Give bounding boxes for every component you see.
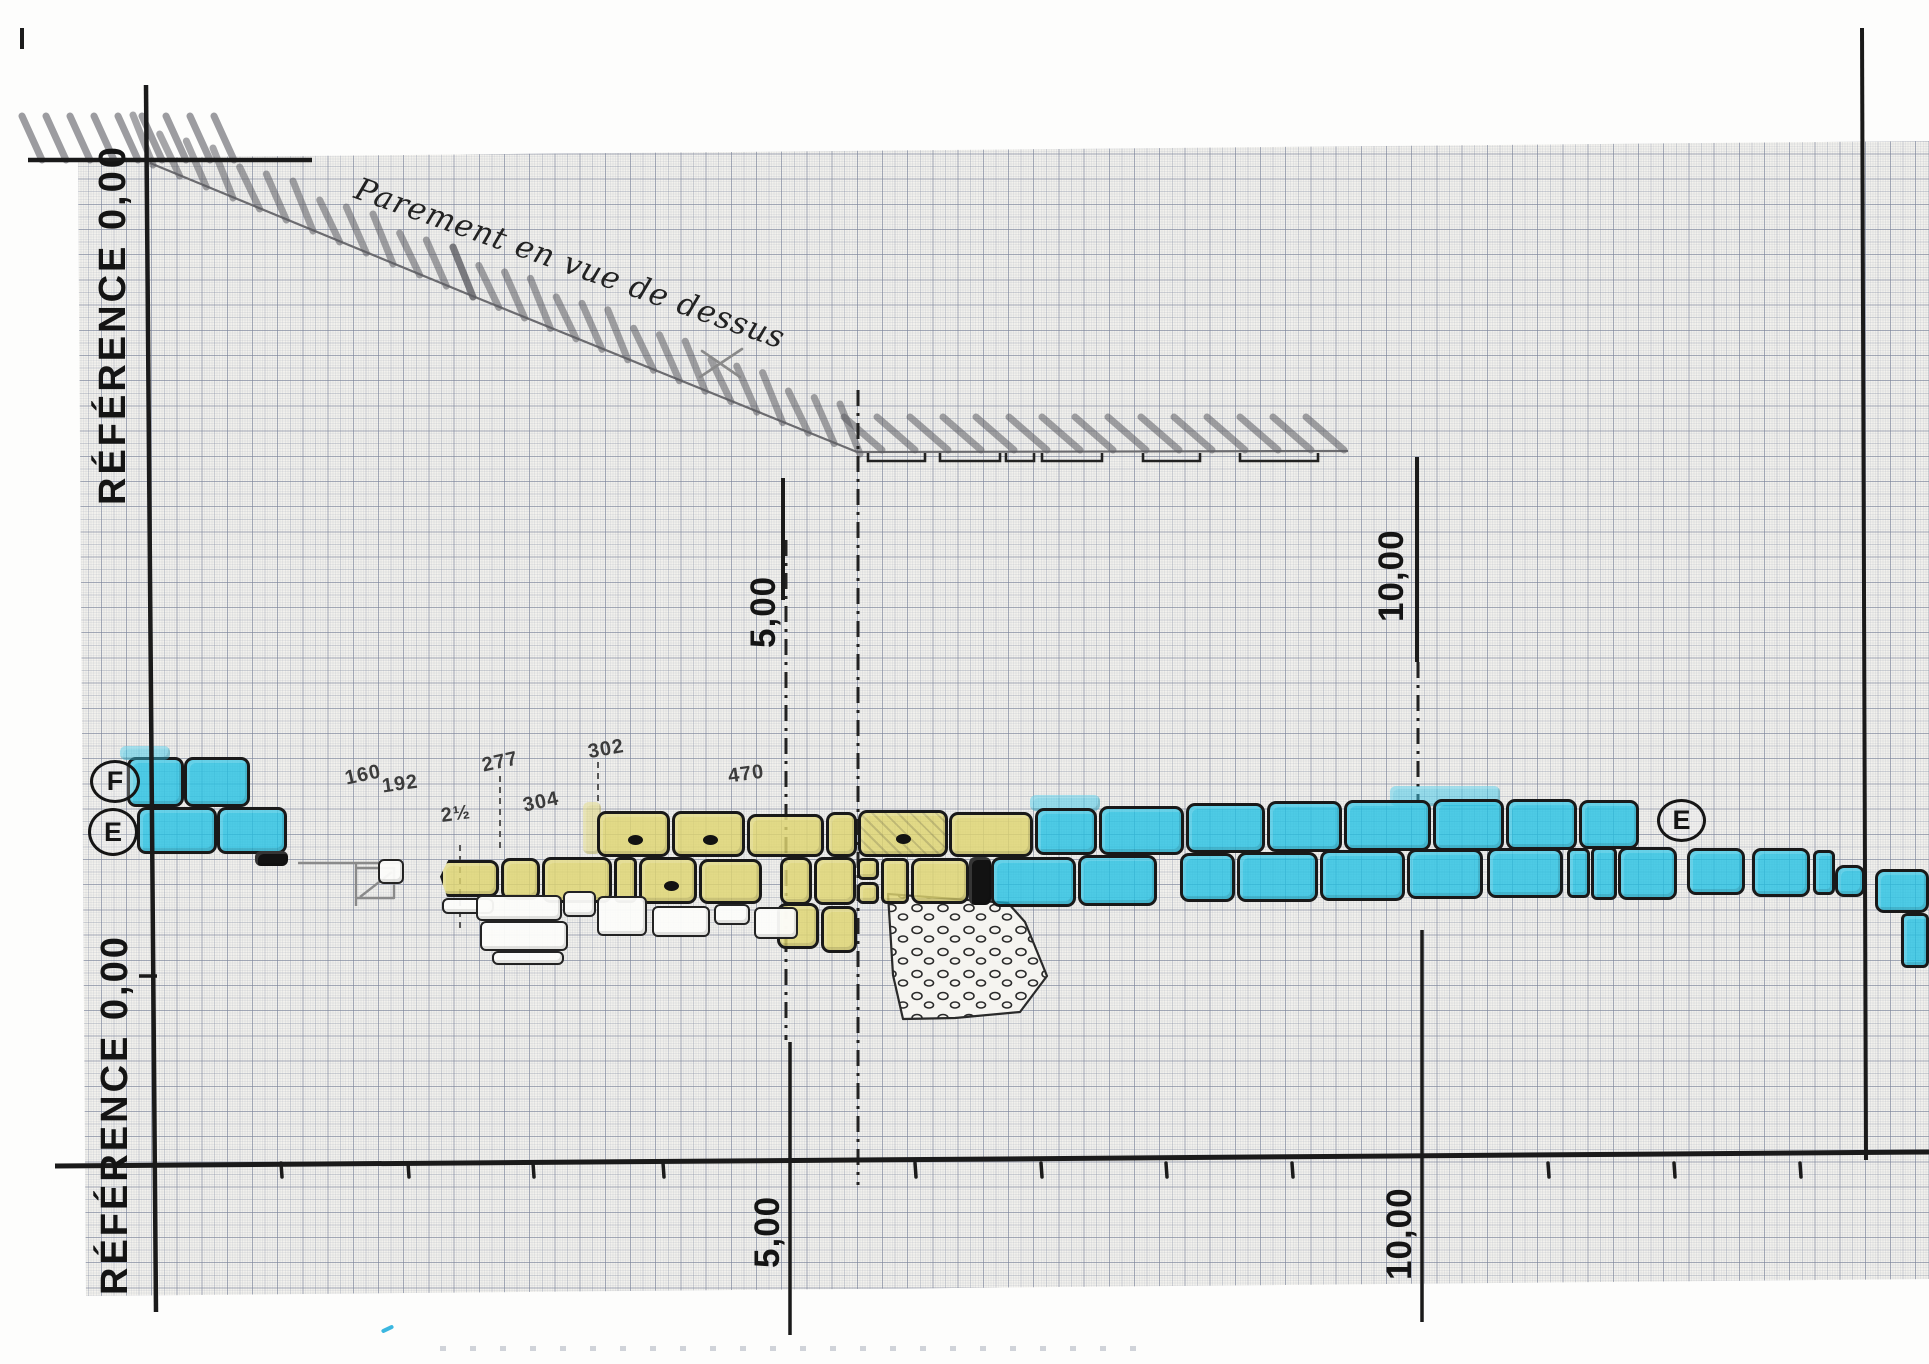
tick-label-10-top: 10,00 (1372, 529, 1412, 622)
reference-label-bottom: RÉFÉRENCE 0,00 (94, 934, 137, 1295)
tick-label-10-bottom: 10,00 (1380, 1187, 1420, 1280)
margin-pen-mark (20, 28, 24, 49)
tick-label-5-bottom: 5,00 (748, 1196, 788, 1268)
tick-label-5-top: 5,00 (744, 576, 784, 648)
reference-label-top: RÉFÉRENCE 0,00 (92, 144, 135, 505)
stone-measure-label: 2½ (440, 801, 473, 828)
marker-letter-f: F (90, 760, 140, 803)
scanned-drawing-page: RÉFÉRENCE 0,00 RÉFÉRENCE 0,00 Parement e… (0, 0, 1929, 1364)
reference-axes (28, 28, 1929, 1335)
marker-letter-e-left: E (88, 808, 138, 856)
marker-letter-e-right: E (1657, 799, 1706, 842)
ink-line-layer (0, 0, 1929, 1364)
